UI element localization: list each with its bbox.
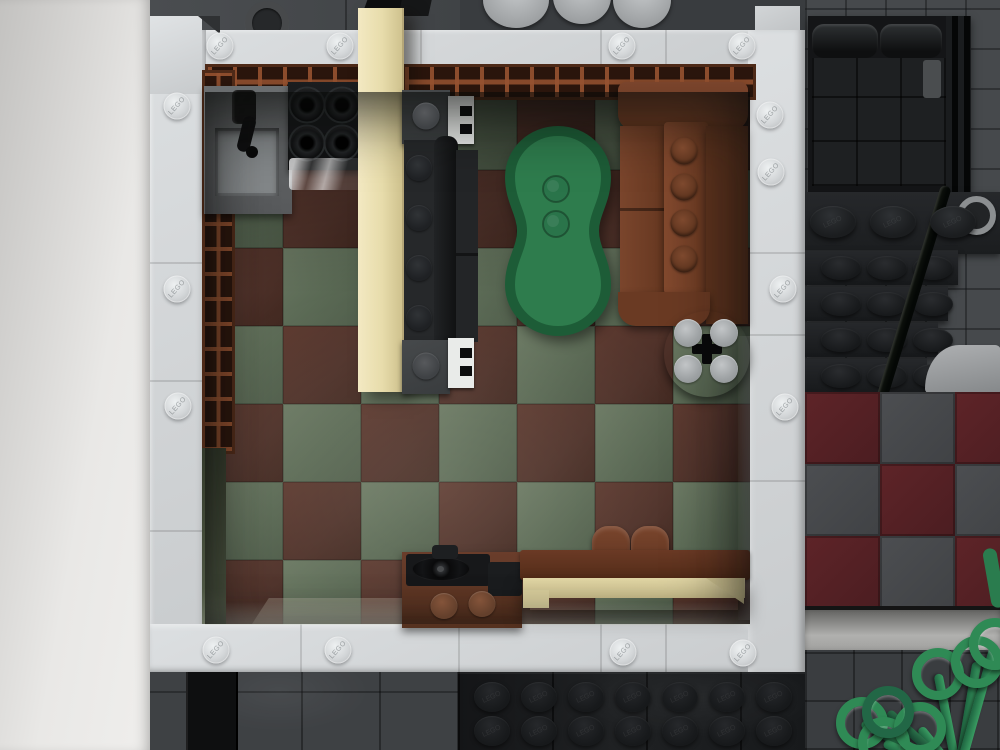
- player-knob: [432, 545, 458, 559]
- black-plate-stud: LEGO: [568, 682, 604, 712]
- red-floor-tile: [880, 464, 955, 536]
- wall-bottom: [150, 624, 805, 672]
- floor-tile: [283, 404, 361, 482]
- side-table-notch: [460, 124, 472, 134]
- wall-stud: LEGO: [165, 393, 192, 420]
- wall-corner-block: [150, 16, 202, 94]
- red-floor-tile: [955, 464, 1000, 536]
- wall-stud: LEGO: [325, 637, 352, 664]
- floor-tile: [361, 404, 439, 482]
- black-plate-stud: LEGO: [615, 682, 651, 712]
- wall-left: [150, 30, 206, 672]
- floor-tile: [283, 482, 361, 560]
- red-floor-tile: [880, 392, 955, 464]
- wall-stud: LEGO: [164, 276, 191, 303]
- arch-brick: [613, 0, 671, 28]
- green-rug: [498, 124, 618, 338]
- stair-stud: [821, 256, 861, 280]
- brown-sofa-stud: [671, 246, 698, 273]
- stair-plate: [805, 250, 958, 285]
- wall-seam: [665, 624, 667, 672]
- floor-tile: [439, 404, 517, 482]
- stair-stud: [821, 292, 861, 316]
- black-plate-stud: LEGO: [810, 206, 856, 238]
- black-plate-stud: LEGO: [756, 682, 792, 712]
- wall-stud: LEGO: [203, 637, 230, 664]
- glass-panel: [289, 158, 361, 190]
- stove-burner: [324, 87, 361, 124]
- black-couch-stud: [406, 255, 432, 281]
- wall-seam: [458, 624, 460, 672]
- black-couch-stud: [406, 205, 432, 231]
- stair-stud: [867, 256, 907, 280]
- black-plate-stud: LEGO: [474, 682, 510, 712]
- black-plate-stud: LEGO: [709, 716, 745, 746]
- wall-stud: LEGO: [757, 102, 784, 129]
- wall-stud: LEGO: [610, 639, 637, 666]
- wall-stud: LEGO: [327, 33, 354, 60]
- wall-seam: [150, 380, 206, 382]
- wall-base-strip: [202, 448, 226, 624]
- wall-seam: [150, 530, 206, 532]
- wall-seam: [150, 262, 206, 264]
- black-plate-stud: LEGO: [521, 682, 557, 712]
- couch-end-stud: [413, 353, 440, 380]
- black-plate-stud: LEGO: [930, 206, 976, 238]
- red-floor-tile: [805, 536, 880, 608]
- wall-seam: [748, 252, 805, 254]
- brown-sofa-stud: [671, 138, 698, 165]
- sofa-cushion-seam: [620, 208, 666, 211]
- stove-burner: [289, 125, 326, 162]
- side-table-notch: [460, 106, 472, 116]
- floor-tile: [595, 404, 673, 482]
- black-plate-stud: LEGO: [521, 716, 557, 746]
- black-couch-stud: [406, 305, 432, 331]
- black-speaker-piece: [488, 562, 522, 596]
- table-under-shadow: [530, 596, 738, 610]
- brown-sofa-stud: [671, 210, 698, 237]
- black-post-piece: [186, 670, 238, 750]
- floor-tile: [283, 248, 361, 326]
- dining-table-leg: [523, 590, 549, 608]
- wall-stud: LEGO: [772, 394, 799, 421]
- black-couch-seat: [456, 150, 478, 342]
- black-plate-stud: LEGO: [756, 716, 792, 746]
- round-table-stud: [710, 319, 738, 347]
- lego-room-top-down-render: LEGOLEGOLEGO LEGOLEGOLEGOLEGOLEGOLEGOLEG…: [0, 0, 1000, 750]
- record-center: [437, 566, 444, 572]
- plant-leaf-ring: [862, 686, 914, 738]
- side-table-notch: [460, 348, 472, 358]
- stair-stud: [913, 292, 953, 316]
- black-plate-stud: LEGO: [615, 716, 651, 746]
- red-floor: [805, 392, 1000, 608]
- brown-sofa-stud: [671, 174, 698, 201]
- wall-stud: LEGO: [164, 93, 191, 120]
- couch-seat-seam: [456, 253, 478, 256]
- red-floor-tile: [805, 392, 880, 464]
- side-table-white: [448, 338, 474, 388]
- arch-brick: [553, 0, 611, 24]
- wall-stud: LEGO: [730, 640, 757, 667]
- stair-plate: [805, 322, 938, 357]
- round-table-stud: [674, 355, 702, 383]
- floor-tile: [517, 482, 595, 560]
- wall-stud: LEGO: [758, 159, 785, 186]
- side-table-notch: [460, 366, 472, 376]
- wall-seam: [748, 334, 805, 336]
- stove-burner: [289, 87, 326, 124]
- red-floor-tile: [880, 536, 955, 608]
- wall-seam: [300, 624, 302, 672]
- wall-seam: [748, 480, 805, 482]
- red-floor-tile: [955, 392, 1000, 464]
- black-plate-stud: LEGO: [568, 716, 604, 746]
- black-couch-backrest: [434, 136, 458, 350]
- floor-tile: [517, 404, 595, 482]
- black-plate-stud: LEGO: [474, 716, 510, 746]
- couch-end-stud: [413, 103, 440, 130]
- stair-stud: [821, 364, 861, 388]
- stove-burner: [324, 125, 361, 162]
- stair-plate: [805, 286, 948, 321]
- wall-stud: LEGO: [729, 33, 756, 60]
- round-table-stud: [674, 319, 702, 347]
- stair-stud: [821, 328, 861, 352]
- stair-plate: [805, 358, 927, 393]
- cabinet-stud: [431, 593, 458, 619]
- black-couch-stud: [406, 155, 432, 181]
- backdrop-gradient: [0, 0, 150, 750]
- wall-stud: LEGO: [609, 33, 636, 60]
- black-plate-stud: LEGO: [662, 682, 698, 712]
- brown-sofa-filler: [706, 126, 748, 324]
- faucet-spout: [246, 146, 258, 158]
- black-plate-stud: LEGO: [870, 206, 916, 238]
- round-table-stud: [710, 355, 738, 383]
- arch-brick: [483, 0, 549, 28]
- red-floor-tile: [805, 464, 880, 536]
- dining-table-top: [520, 550, 750, 580]
- black-plate-stud: LEGO: [709, 682, 745, 712]
- floor-tile: [283, 326, 361, 404]
- wall-stud: LEGO: [770, 276, 797, 303]
- tan-divider-wall: [358, 8, 404, 392]
- wall-seam: [600, 624, 602, 672]
- wall-stud: LEGO: [207, 33, 234, 60]
- cabinet-stud: [469, 591, 496, 617]
- black-plate-stud: LEGO: [662, 716, 698, 746]
- floor-tile: [361, 482, 439, 560]
